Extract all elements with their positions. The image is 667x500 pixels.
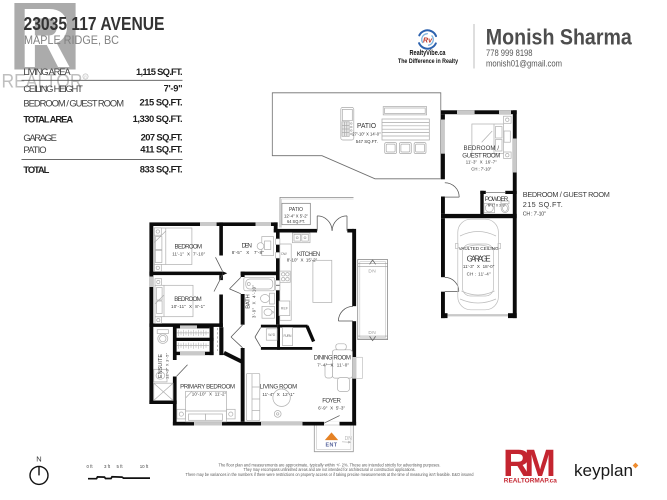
svg-text:0 ft: 0 ft [86, 464, 93, 469]
svg-text:10'-11" X 8'-1": 10'-11" X 8'-1" [171, 304, 205, 309]
svg-text:TOTAL AREA: TOTAL AREA [23, 114, 73, 125]
svg-text:DW: DW [281, 252, 287, 256]
svg-text:BEDROOM / GUEST ROOM: BEDROOM / GUEST ROOM [523, 190, 610, 199]
svg-text:RealtyVibe.ca: RealtyVibe.ca [410, 48, 447, 57]
svg-text:778 999 8198: 778 999 8198 [486, 48, 533, 58]
svg-text:BEDROOM / GUEST ROOM: BEDROOM / GUEST ROOM [23, 98, 124, 109]
svg-text:11'-1" X 7'-10": 11'-1" X 7'-10" [172, 251, 205, 256]
svg-text:W/D: W/D [268, 333, 276, 337]
svg-text:ENSUITE: ENSUITE [158, 354, 164, 378]
svg-text:215 SQ.FT.: 215 SQ.FT. [140, 97, 183, 108]
svg-text:PATIO: PATIO [23, 144, 46, 155]
svg-text:11'-3" X 16'-7": 11'-3" X 16'-7" [466, 160, 497, 165]
svg-text:6'-9" X 5'-3": 6'-9" X 5'-3" [318, 406, 345, 411]
svg-text:The Difference in Realty: The Difference in Realty [398, 58, 458, 65]
svg-text:1,330 SQ.FT.: 1,330 SQ.FT. [133, 113, 183, 124]
svg-text:FURN: FURN [284, 334, 293, 338]
svg-text:11'-3" X 18'-0": 11'-3" X 18'-0" [463, 264, 495, 269]
svg-text:GUEST ROOM: GUEST ROOM [462, 152, 500, 159]
svg-text:DN: DN [368, 330, 376, 336]
svg-text:LIVING ROOM: LIVING ROOM [260, 384, 298, 391]
svg-text:PRIMARY BEDROOM: PRIMARY BEDROOM [180, 384, 235, 391]
svg-text:CH : 7'-10": CH : 7'-10" [471, 167, 491, 172]
svg-text:VAULTED CEILING: VAULTED CEILING [459, 246, 499, 251]
svg-text:DEN: DEN [241, 243, 252, 250]
svg-text:GARAGE: GARAGE [23, 132, 57, 143]
svg-text:27'-10" X 14'-0": 27'-10" X 14'-0" [352, 131, 381, 136]
svg-text:There may be variances in the: There may be variances in the numbers if… [186, 472, 475, 477]
svg-text:23035 117 AVENUE: 23035 117 AVENUE [24, 13, 165, 34]
svg-text:7'-4" X 11'-0": 7'-4" X 11'-0" [317, 363, 349, 368]
svg-text:64 SQ.FT.: 64 SQ.FT. [287, 219, 305, 224]
svg-text:10'-10" X 11'-2": 10'-10" X 11'-2" [192, 392, 227, 397]
svg-text:LIVING AREA: LIVING AREA [23, 66, 71, 77]
svg-text:8'-10" X 15'-2": 8'-10" X 15'-2" [287, 257, 318, 262]
svg-text:ENT: ENT [326, 443, 338, 449]
svg-text:CH : 11'-4": CH : 11'-4" [467, 272, 491, 277]
svg-text:3 ft: 3 ft [104, 464, 111, 469]
svg-text:CH : 7'-10": CH : 7'-10" [523, 212, 546, 218]
svg-text:GARAGE: GARAGE [467, 255, 491, 264]
svg-text:POWDER: POWDER [485, 196, 509, 203]
svg-text:CEILING HEIGHT: CEILING HEIGHT [23, 83, 83, 94]
svg-text:BEDROOM: BEDROOM [175, 243, 203, 250]
svg-text:FOYER: FOYER [322, 398, 341, 405]
svg-text:7'-9": 7'-9" [164, 83, 183, 94]
svg-text:DINING ROOM: DINING ROOM [314, 355, 351, 362]
svg-text:12'-3" X 3'-5": 12'-3" X 3'-5" [164, 352, 169, 379]
svg-text:11'-4" X 12'-1": 11'-4" X 12'-1" [262, 392, 294, 397]
svg-text:MAPLE RIDGE, BC: MAPLE RIDGE, BC [24, 33, 119, 47]
svg-text:BEDROOM /: BEDROOM / [464, 145, 500, 152]
svg-text:10 ft: 10 ft [140, 464, 149, 469]
svg-text:1,115 SQ.FT.: 1,115 SQ.FT. [136, 66, 183, 77]
svg-text:TOTAL: TOTAL [23, 164, 49, 175]
svg-text:207 SQ.FT.: 207 SQ.FT. [141, 132, 183, 143]
svg-text:REALTORMAP.ca: REALTORMAP.ca [504, 477, 557, 484]
svg-text:PATIO: PATIO [357, 121, 376, 130]
svg-text:5 ft: 5 ft [116, 464, 123, 469]
svg-text:3'-9" X 4'-10": 3'-9" X 4'-10" [252, 285, 257, 318]
svg-text:PATIO: PATIO [289, 207, 303, 213]
svg-text:DN: DN [368, 269, 376, 275]
svg-text:N: N [36, 455, 41, 464]
svg-text:R: R [84, 75, 87, 79]
svg-text:8'-5" X 7'-8": 8'-5" X 7'-8" [232, 250, 264, 255]
svg-text:411 SQ.FT.: 411 SQ.FT. [140, 144, 182, 155]
svg-text:547 SQ.FT.: 547 SQ.FT. [356, 139, 378, 144]
svg-text:833 SQ.FT.: 833 SQ.FT. [140, 164, 183, 175]
svg-text:monish01@gmail.com: monish01@gmail.com [486, 59, 562, 69]
svg-text:keyplan: keyplan [574, 461, 633, 480]
svg-text:Monish Sharma: Monish Sharma [486, 24, 633, 49]
svg-text:Rv: Rv [423, 38, 433, 45]
svg-text:6'-1" X 3'-2": 6'-1" X 3'-2" [488, 204, 507, 208]
svg-text:215 SQ.FT.: 215 SQ.FT. [523, 200, 563, 209]
svg-text:REF: REF [281, 307, 288, 311]
svg-text:BEDROOM: BEDROOM [174, 296, 202, 303]
svg-text:12'-4" X 5'-2": 12'-4" X 5'-2" [284, 213, 309, 218]
